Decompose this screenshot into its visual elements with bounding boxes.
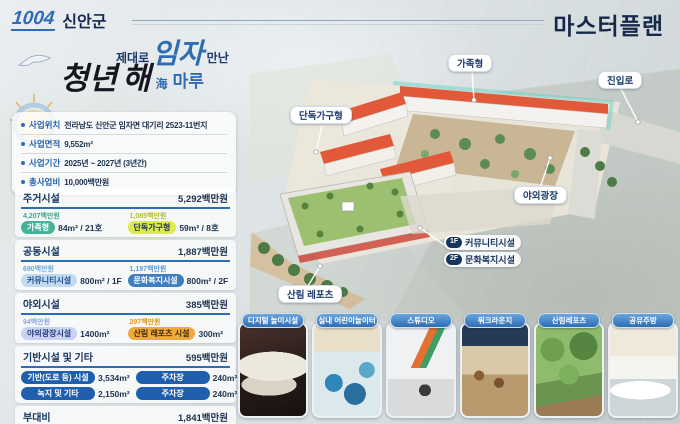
info-value: 10,000백만원 <box>64 177 109 188</box>
item-pill: 가족형 <box>21 221 55 234</box>
info-value: 9,552m² <box>64 140 92 149</box>
item-cost: 1,197백만원 <box>130 264 231 274</box>
info-row-area: 사업면적 9,552m² <box>21 134 227 153</box>
map-label-family-type: 가족형 <box>448 54 492 72</box>
slogan-hanja-sea: 海 <box>156 75 168 92</box>
section-infrastructure: 기반시설 및 기타 595백만원 기반(도로 등) 시설 3,534m² 주차장… <box>15 346 236 403</box>
header-divider-line <box>132 20 544 25</box>
floor-badge-2f: 2F <box>446 254 462 264</box>
section-header: 야외시설 385백만원 <box>21 295 230 315</box>
photo-card-indoor-playground: 실내 어린이놀이터 <box>312 313 382 418</box>
cost-item-single: 1,085백만원 단독가구형 59m² / 8호 <box>128 210 231 234</box>
slogan-word-maru: 마루 <box>173 67 204 92</box>
info-row-location: 사업위치 전라남도 신안군 임자면 대기리 2523-11번지 <box>21 116 227 134</box>
master-plan-slide: 1004 신안군 마스터플랜 제대로 임자 만난 청년 해 海 마루 <box>0 0 680 424</box>
slogan-word-hae: 해 <box>122 66 151 92</box>
item-pill: 주차장 <box>136 371 210 384</box>
item-value: 800m² / 1F <box>80 276 122 286</box>
cost-breakdown-panel: 주거시설 5,292백만원 4,207백만원 가족형 84m² / 21호 1,… <box>15 187 236 424</box>
legend-text: 커뮤니티시설 <box>465 236 515 249</box>
photo-caption: 실내 어린이놀이터 <box>316 313 378 328</box>
map-label-outdoor-plaza: 야외광장 <box>514 186 567 204</box>
item-cost: 297백만원 <box>130 317 231 327</box>
section-title: 부대비 <box>23 409 51 424</box>
item-pill: 야외광장시설 <box>21 327 77 340</box>
section-title: 야외시설 <box>23 296 60 311</box>
legend-row-1f: 1F 커뮤니티시설 <box>444 235 521 250</box>
section-body: 690백만원 커뮤니티시설 800m² / 1F 1,197백만원 문화복지시설… <box>21 262 230 287</box>
photo-work-lounge <box>460 322 530 418</box>
site-plan-map: 가족형 진입로 단독가구형 야외광장 산림 레포츠 1F 커뮤니티시설 2F 문… <box>250 34 680 321</box>
item-value: 1400m² <box>80 329 109 339</box>
section-incidentals: 부대비 1,841백만원 <box>15 406 236 424</box>
photo-card-digital-play: 디지털 놀이시설 <box>238 313 308 418</box>
section-body: 94백만원 야외광장시설 1400m² 297백만원 산림 레포츠 시설 300… <box>21 315 230 340</box>
logo-county-name: 신안군 <box>62 15 106 31</box>
legend-row-2f: 2F 문화복지시설 <box>444 252 521 267</box>
section-total: 1,887백만원 <box>178 244 228 258</box>
cost-item-culture: 1,197백만원 문화복지시설 800m² / 2F <box>128 263 231 287</box>
info-label: 사업위치 <box>29 119 60 131</box>
floor-badge-1f: 1F <box>446 237 462 247</box>
slogan-word-youth: 청년 <box>60 66 117 92</box>
bullet-icon <box>21 123 25 127</box>
item-cost: 94백만원 <box>23 317 124 327</box>
section-title: 기반시설 및 기타 <box>23 349 93 364</box>
item-value: 240m² <box>213 389 238 399</box>
info-row-period: 사업기간 2025년 ~ 2027년 (3년간) <box>21 153 227 172</box>
item-pill: 문화복지시설 <box>128 274 184 287</box>
section-total: 595백만원 <box>186 350 228 364</box>
section-header: 주거시설 5,292백만원 <box>21 189 230 209</box>
item-value: 84m² / 21호 <box>58 222 102 234</box>
photo-studio <box>386 322 456 418</box>
item-pill: 단독가구형 <box>128 221 177 234</box>
cost-item-forest-leports: 297백만원 산림 레포츠 시설 300m² <box>128 316 231 340</box>
section-body: 4,207백만원 가족형 84m² / 21호 1,085백만원 단독가구형 5… <box>21 209 230 234</box>
photo-card-shared-kitchen: 공유주방 <box>608 313 678 418</box>
info-value: 2025년 ~ 2027년 (3년간) <box>64 158 146 169</box>
section-title: 주거시설 <box>23 190 60 205</box>
item-value: 59m² / 8호 <box>179 222 218 234</box>
item-pill: 주차장 <box>136 387 210 400</box>
cost-item-family: 4,207백만원 가족형 84m² / 21호 <box>21 210 124 234</box>
slogan-word-mannan: 만난 <box>207 49 229 66</box>
bullet-icon <box>21 161 25 165</box>
shinan-logo: 1004 신안군 <box>12 9 106 31</box>
photo-card-forest-leports: 산림레포츠 <box>534 313 604 418</box>
photo-caption: 디지털 놀이시설 <box>242 313 304 328</box>
cost-item-plaza: 94백만원 야외광장시설 1400m² <box>21 316 124 340</box>
item-cost: 4,207백만원 <box>23 211 124 221</box>
facility-photo-strip: 디지털 놀이시설 실내 어린이놀이터 스튜디오 워크라운지 산림레포츠 공유주방 <box>238 313 678 418</box>
section-header: 부대비 1,841백만원 <box>21 408 230 424</box>
photo-forest-leports <box>534 322 604 418</box>
info-value: 전라남도 신안군 임자면 대기리 2523-11번지 <box>64 120 207 131</box>
item-value: 300m² <box>198 329 223 339</box>
photo-digital-play <box>238 322 308 418</box>
section-title: 공동시설 <box>23 243 60 258</box>
item-value: 2,150m² <box>98 389 130 399</box>
item-pill: 산림 레포츠 시설 <box>128 327 196 340</box>
bullet-icon <box>21 142 25 146</box>
bullet-icon <box>21 180 25 184</box>
section-community: 공동시설 1,887백만원 690백만원 커뮤니티시설 800m² / 1F 1… <box>15 240 236 290</box>
cost-item-parking-2: 주차장 240m² <box>136 387 238 400</box>
item-value: 3,534m² <box>98 373 130 383</box>
item-pill: 기반(도로 등) 시설 <box>21 371 95 384</box>
project-info-panel: 사업위치 전라남도 신안군 임자면 대기리 2523-11번지 사업면적 9,5… <box>12 112 236 195</box>
photo-card-work-lounge: 워크라운지 <box>460 313 530 418</box>
section-header: 기반시설 및 기타 595백만원 <box>21 348 230 368</box>
map-label-entry-road: 진입로 <box>598 71 642 89</box>
photo-caption: 공유주방 <box>612 313 674 328</box>
photo-card-studio: 스튜디오 <box>386 313 456 418</box>
section-total: 385백만원 <box>186 297 228 311</box>
floor-legend: 1F 커뮤니티시설 2F 문화복지시설 <box>444 235 521 267</box>
bird-icon <box>19 55 50 65</box>
item-cost: 1,085백만원 <box>130 211 231 221</box>
logo-1004: 1004 <box>11 9 58 31</box>
info-label: 사업면적 <box>29 138 60 150</box>
legend-text: 문화복지시설 <box>465 253 515 266</box>
section-body: 기반(도로 등) 시설 3,534m² 주차장 240m² 녹지 및 기타 2,… <box>21 368 230 400</box>
cost-item-community: 690백만원 커뮤니티시설 800m² / 1F <box>21 263 124 287</box>
section-total: 1,841백만원 <box>178 410 228 424</box>
cost-item-parking-1: 주차장 240m² <box>136 371 238 384</box>
item-pill: 커뮤니티시설 <box>21 274 77 287</box>
cost-item-green: 녹지 및 기타 2,150m² <box>21 387 130 400</box>
photo-caption: 워크라운지 <box>464 313 526 328</box>
map-label-forest-leports: 산림 레포츠 <box>278 285 342 303</box>
item-cost: 690백만원 <box>23 264 124 274</box>
photo-indoor-playground <box>312 322 382 418</box>
slogan-word-imja: 임자 <box>152 42 204 66</box>
item-value: 800m² / 2F <box>187 276 229 286</box>
section-total: 5,292백만원 <box>178 191 228 205</box>
photo-caption: 산림레포츠 <box>538 313 600 328</box>
map-label-single-household: 단독가구형 <box>290 106 352 124</box>
cost-item-road: 기반(도로 등) 시설 3,534m² <box>21 371 130 384</box>
roof-hut <box>342 202 354 211</box>
info-label: 사업기간 <box>29 157 60 169</box>
section-housing: 주거시설 5,292백만원 4,207백만원 가족형 84m² / 21호 1,… <box>15 187 236 237</box>
photo-caption: 스튜디오 <box>390 313 452 328</box>
item-value: 240m² <box>213 373 238 383</box>
item-pill: 녹지 및 기타 <box>21 387 95 400</box>
section-header: 공동시설 1,887백만원 <box>21 242 230 262</box>
section-outdoor: 야외시설 385백만원 94백만원 야외광장시설 1400m² 297백만원 산… <box>15 293 236 343</box>
photo-shared-kitchen <box>608 322 678 418</box>
